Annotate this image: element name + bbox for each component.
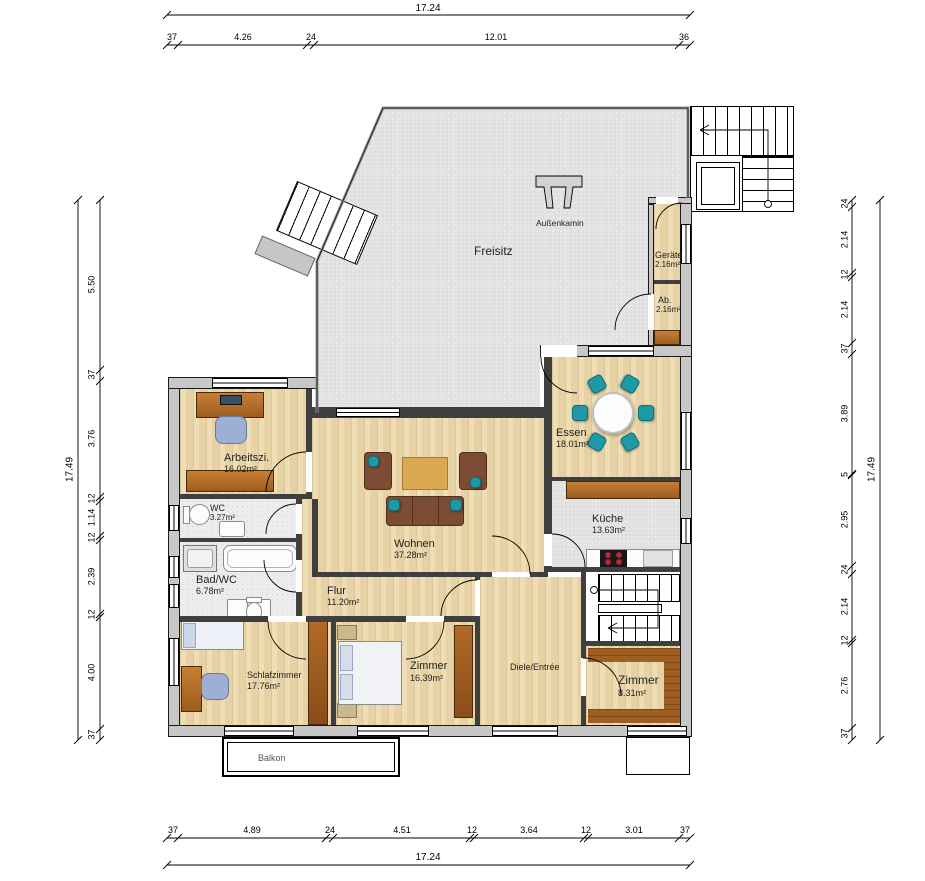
builtin-cabinet-top-symbol [588,648,680,662]
dim-right-seg: 2.14 [840,590,851,624]
dim-bottom-seg: 3.01 [614,825,654,836]
dim-top-seg: 36 [664,32,704,43]
window [627,726,687,736]
toilet-symbol [189,504,210,525]
bed-pillow-icon [340,645,353,671]
dim-right-seg: 37 [840,717,851,751]
exterior-stairs-upper-flight [690,106,794,156]
room-label-diele: Diele/Entrée [510,661,560,673]
dim-bottom-seg: 3.64 [509,825,549,836]
dim-right-seg: 3.89 [840,397,851,431]
office-chair-symbol [215,416,247,444]
dim-right-seg: 24 [840,553,851,587]
wall [312,572,476,577]
wall [654,280,680,284]
interior-stairs-lower-flight [598,615,680,642]
dim-left-seg: 3.76 [87,422,98,456]
room-area-geraete: 2.16m² [655,260,680,270]
nightstand-symbol [337,703,357,718]
dim-top-total: 17.24 [408,3,448,14]
room-label-essen: Essen [556,427,587,439]
room-label-zimmer2: Zimmer [618,674,659,686]
cabinet-symbol [654,330,680,345]
door-opening [544,534,552,566]
floor-plan-canvas: Freisitz Außenkamin Geräte 2.16m² Ab. 2.… [0,0,925,881]
door-opening [296,560,302,592]
dim-right-seg: 24 [840,187,851,221]
dining-table-symbol [592,392,634,434]
wall [552,477,680,481]
room-label-flur: Flur [327,585,346,597]
window [681,412,691,470]
exterior-stairs-right-flight [742,156,794,212]
wall [586,641,680,646]
dim-bottom-seg: 12 [452,825,492,836]
dim-top-seg: 37 [152,32,192,43]
door-opening [268,616,306,622]
wardrobe-symbol [308,621,328,725]
room-label-schlafzimmer: Schlafzimmer [247,669,302,681]
room-label-zimmer1: Zimmer [410,660,447,672]
room-area-bad: 6.78m² [196,586,224,596]
dim-top-seg: 24 [291,32,331,43]
bedroom-desk-symbol [181,666,202,712]
dim-top-seg: 12.01 [476,32,516,43]
dim-right-seg: 2.14 [840,293,851,327]
sofa-pillow-right-icon [450,499,462,511]
bed-pillow-icon [183,623,196,648]
room-label-aussenkamin: Außenkamin [536,218,584,228]
interior-stairs-landing [598,604,662,613]
diele-floor [480,577,581,725]
dim-right-seg: 5 [840,458,851,492]
dim-bottom-seg: 24 [310,825,350,836]
coffee-table-symbol [402,457,448,490]
dining-chair-icon [572,405,588,421]
room-area-kueche: 13.63m² [592,525,625,535]
sofa-pillow-left-icon [388,499,400,511]
room-area-zimmer1: 16.39m² [410,673,443,683]
corridor-floor [302,499,312,577]
armchair-pillow-right-icon [470,477,481,488]
door-opening [296,504,302,534]
room-label-freisitz: Freisitz [474,245,513,257]
exterior-stairs-landing [696,162,740,210]
toilet-bad-tank-symbol [246,597,262,603]
room-label-arbeitszimmer: Arbeitszi. [224,452,269,464]
door-opening [475,580,480,616]
dim-bottom-total: 17.24 [408,852,448,863]
door-opening [581,658,586,696]
room-area-essen: 18.01m² [556,439,589,449]
kitchen-sink-symbol [643,550,673,567]
room-label-kueche: Küche [592,513,623,525]
dim-left-seg: 37 [87,358,98,392]
terrace-door [336,408,400,417]
dim-left-seg: 5.50 [87,268,98,302]
door-opening [541,345,577,357]
room-area-wc: 3.27m² [210,513,235,523]
door-opening [656,197,678,204]
dim-right-seg: 37 [840,332,851,366]
dim-left-seg: 12 [87,598,98,632]
sink-symbol [219,521,245,537]
nightstand-symbol [337,625,357,640]
dim-top-seg: 4.26 [223,32,263,43]
dining-chair-icon [638,405,654,421]
window [357,726,429,736]
interior-stairs-upper-flight [598,574,680,602]
monitor-symbol [220,395,242,405]
room-area-flur: 11.20m² [327,597,359,607]
dim-bottom-seg: 12 [566,825,606,836]
wall [312,499,318,572]
balkon-deck [222,737,400,777]
wall [331,621,336,725]
dim-bottom-seg: 37 [665,825,705,836]
dim-right-seg: 12 [840,258,851,292]
dim-bottom-seg: 4.89 [232,825,272,836]
wall [581,572,586,725]
terrace-deck-small [626,737,690,775]
kitchen-counter-symbol [566,481,680,499]
room-label-wohnen: Wohnen [394,538,435,550]
door-opening [648,294,654,330]
armchair-pillow-left-icon [368,456,379,467]
dim-left-seg: 37 [87,718,98,752]
cooktop-symbol [600,550,627,567]
dim-left-seg: 4.00 [87,656,98,690]
bed-pillow-icon [340,674,353,700]
room-area-abstell: 2.16m² [656,305,681,315]
window [681,518,691,544]
wardrobe-symbol [454,625,473,718]
dim-right-total: 17.49 [867,453,878,487]
room-label-bad: Bad/WC [196,574,237,586]
dim-right-seg: 2.95 [840,503,851,537]
wall [544,567,680,572]
dim-right-seg: 2.14 [840,223,851,257]
builtin-cabinet-right-symbol [664,662,680,709]
wall [180,494,312,499]
window [169,505,179,531]
room-area-arbeitszimmer: 16.02m² [224,464,257,474]
dim-left-seg: 2.39 [87,560,98,594]
window [169,638,179,686]
window [169,584,179,608]
door-opening [406,616,444,622]
dim-right-seg: 2.76 [840,669,851,703]
builtin-cabinet-bottom-symbol [588,709,680,723]
bedroom-chair-symbol [201,673,229,700]
room-area-wohnen: 37.28m² [394,550,427,560]
dim-right-seg: 12 [840,624,851,658]
dim-bottom-seg: 4.51 [382,825,422,836]
dim-left-total: 17.49 [65,453,76,487]
window [224,726,294,736]
room-area-zimmer2: 8.31m² [618,688,646,698]
window [212,378,288,388]
door-opening [306,452,312,492]
dim-bottom-seg: 37 [153,825,193,836]
wall [180,538,296,542]
room-label-balkon: Balkon [258,753,286,763]
room-area-schlafzimmer: 17.76m² [247,681,280,691]
shower-symbol [183,545,217,572]
door-opening [492,572,530,577]
dim-left-seg: 12 [87,521,98,555]
window [588,346,654,356]
window [492,726,558,736]
bathtub-symbol [223,545,297,572]
window [169,556,179,578]
